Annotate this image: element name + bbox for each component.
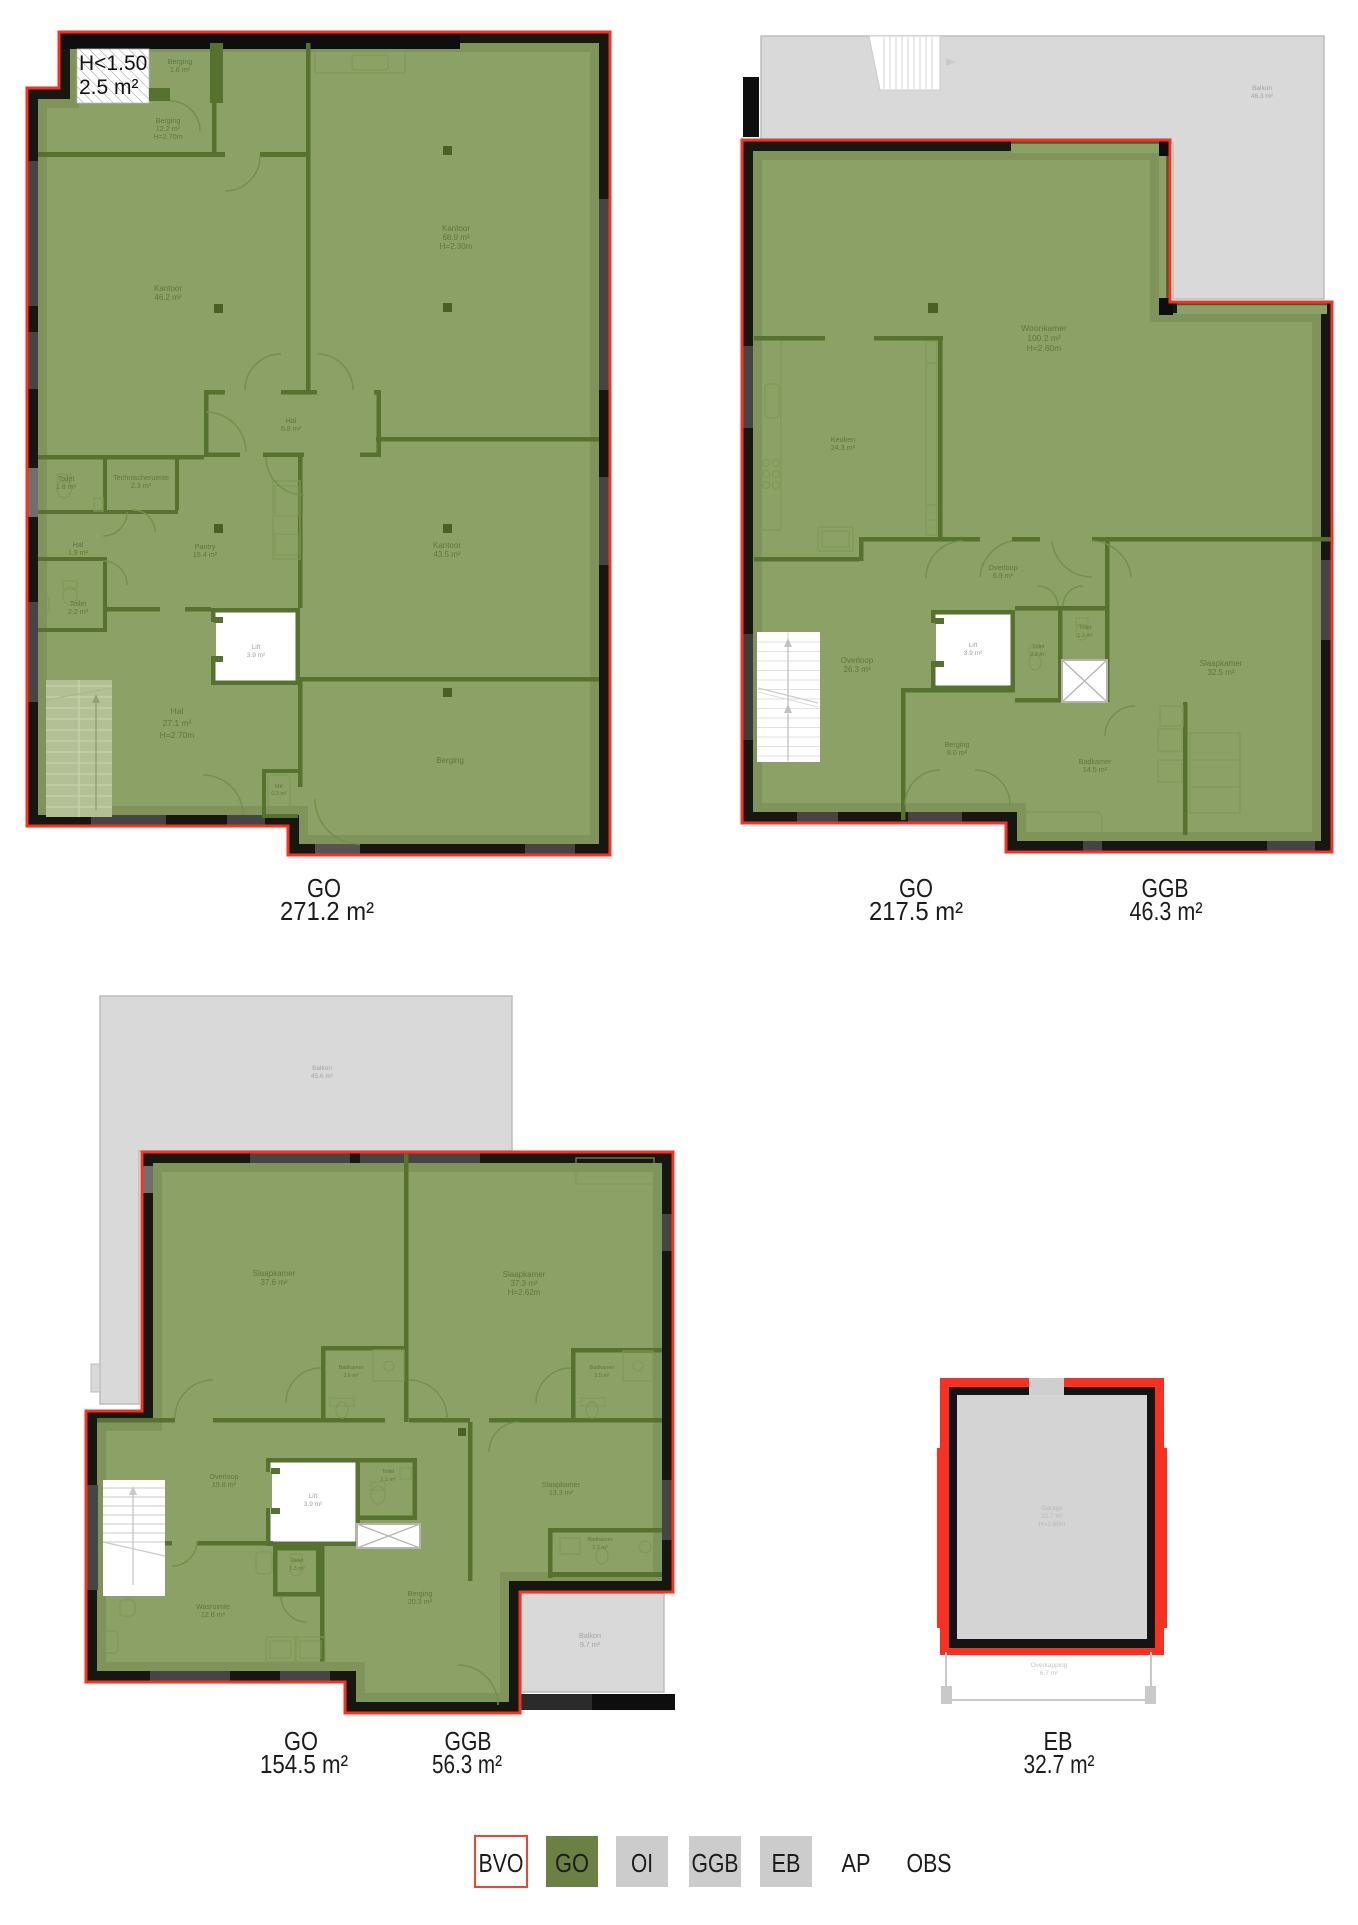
svg-text:Balkon: Balkon [312, 1065, 332, 1072]
svg-text:3.9 m²: 3.9 m² [247, 652, 266, 659]
svg-text:Balkon: Balkon [1252, 85, 1272, 92]
svg-text:9.7 m²: 9.7 m² [580, 1640, 601, 1649]
svg-text:MK: MK [275, 784, 284, 790]
svg-text:2.1 m²: 2.1 m² [380, 1477, 396, 1483]
svg-text:Overkapping: Overkapping [1031, 1662, 1068, 1669]
svg-text:H=2.60m: H=2.60m [1027, 343, 1062, 353]
svg-text:Slaapkamer: Slaapkamer [253, 1269, 296, 1278]
svg-text:1.3 m²: 1.3 m² [289, 1566, 305, 1572]
svg-text:24.3 m²: 24.3 m² [831, 443, 856, 452]
svg-text:2.1 m²: 2.1 m² [592, 1545, 608, 1551]
svg-text:Toilet: Toilet [1032, 644, 1045, 650]
svg-text:Badkamer: Badkamer [589, 1365, 614, 1371]
svg-text:1.9 m²: 1.9 m² [68, 548, 89, 557]
svg-text:H=2.30m: H=2.30m [440, 242, 473, 251]
svg-text:43.5 m²: 43.5 m² [433, 550, 460, 559]
svg-text:45.6 m²: 45.6 m² [311, 1073, 334, 1080]
svg-text:6.7 m²: 6.7 m² [1040, 1670, 1059, 1677]
svg-text:GGB: GGB [692, 1848, 739, 1878]
svg-text:H=2.70m: H=2.70m [153, 132, 182, 141]
svg-text:H=2.60m: H=2.60m [1039, 1521, 1066, 1528]
svg-text:Woonkamer: Woonkamer [1021, 323, 1067, 333]
svg-text:2.3 m²: 2.3 m² [1030, 652, 1046, 658]
svg-text:13.3 m²: 13.3 m² [549, 1488, 574, 1497]
svg-text:GO: GO [555, 1848, 589, 1878]
svg-text:12.6 m²: 12.6 m² [201, 1610, 226, 1619]
svg-text:Lift: Lift [252, 644, 261, 651]
svg-text:Slaapkamer: Slaapkamer [503, 1270, 546, 1279]
svg-text:H=2.62m: H=2.62m [508, 1288, 541, 1297]
svg-text:19.8 m²: 19.8 m² [212, 1480, 237, 1489]
svg-text:H<1.50: H<1.50 [79, 52, 147, 75]
svg-text:Balkon: Balkon [579, 1631, 601, 1640]
svg-text:271.2 m²: 271.2 m² [280, 896, 374, 926]
svg-text:Toilet: Toilet [1079, 625, 1092, 631]
svg-text:46.3 m²: 46.3 m² [1251, 93, 1274, 100]
svg-text:Kantoor: Kantoor [442, 224, 470, 233]
svg-text:Overloop: Overloop [841, 656, 874, 665]
svg-text:14.5 m²: 14.5 m² [1083, 765, 1108, 774]
svg-text:46.2 m²: 46.2 m² [154, 293, 181, 302]
svg-text:Lift: Lift [969, 642, 978, 649]
svg-text:0.3 m²: 0.3 m² [271, 791, 287, 797]
svg-text:2.5 m²: 2.5 m² [79, 76, 139, 99]
svg-text:BVO: BVO [479, 1848, 524, 1878]
svg-text:Kantoor: Kantoor [433, 541, 461, 550]
svg-text:OI: OI [631, 1848, 653, 1878]
svg-text:8.0 m²: 8.0 m² [947, 748, 968, 757]
svg-text:1.3 m²: 1.3 m² [1077, 633, 1093, 639]
svg-text:6.9 m²: 6.9 m² [993, 571, 1014, 580]
svg-text:Toilet: Toilet [382, 1469, 395, 1475]
svg-text:154.5 m²: 154.5 m² [260, 1749, 348, 1779]
svg-text:1.6 m²: 1.6 m² [170, 65, 191, 74]
svg-text:3.9 m²: 3.9 m² [304, 1501, 323, 1508]
svg-text:Badkamer: Badkamer [587, 1537, 612, 1543]
svg-text:27.1 m²: 27.1 m² [163, 718, 192, 728]
svg-text:20.3 m²: 20.3 m² [408, 1597, 433, 1606]
svg-text:3.6 m²: 3.6 m² [343, 1373, 359, 1379]
svg-text:6.8 m²: 6.8 m² [281, 424, 302, 433]
svg-text:56.3 m²: 56.3 m² [432, 1749, 502, 1779]
svg-text:46.3 m²: 46.3 m² [1130, 896, 1203, 926]
svg-text:2.3 m²: 2.3 m² [131, 481, 152, 490]
svg-text:32.7 m²: 32.7 m² [1041, 1513, 1064, 1520]
svg-text:EB: EB [772, 1848, 801, 1878]
svg-text:100.2 m²: 100.2 m² [1027, 333, 1061, 343]
svg-text:3.5 m²: 3.5 m² [594, 1373, 610, 1379]
svg-text:32.5 m²: 32.5 m² [1207, 668, 1234, 677]
svg-text:2.2 m²: 2.2 m² [68, 607, 89, 616]
svg-text:Badkamer: Badkamer [338, 1365, 363, 1371]
svg-text:Berging: Berging [436, 756, 464, 765]
svg-text:Lift: Lift [309, 1493, 318, 1500]
svg-text:Toilet: Toilet [291, 1558, 304, 1564]
svg-text:32.7 m²: 32.7 m² [1024, 1749, 1095, 1779]
svg-text:37.6 m²: 37.6 m² [260, 1278, 287, 1287]
svg-text:Garage: Garage [1041, 1505, 1063, 1512]
svg-text:OBS: OBS [907, 1848, 952, 1878]
svg-text:37.3 m²: 37.3 m² [510, 1279, 537, 1288]
svg-text:AP: AP [842, 1848, 871, 1878]
svg-text:217.5 m²: 217.5 m² [869, 896, 963, 926]
svg-text:Kantoor: Kantoor [154, 284, 182, 293]
svg-text:15.4 m²: 15.4 m² [193, 550, 218, 559]
svg-text:Hal: Hal [171, 706, 184, 716]
svg-text:H=2.70m: H=2.70m [160, 730, 195, 740]
svg-text:68.9 m²: 68.9 m² [442, 233, 469, 242]
svg-text:Slaapkamer: Slaapkamer [1200, 659, 1243, 668]
svg-text:3.9 m²: 3.9 m² [964, 650, 983, 657]
svg-text:26.3 m²: 26.3 m² [843, 665, 870, 674]
svg-text:1.8 m²: 1.8 m² [56, 482, 77, 491]
